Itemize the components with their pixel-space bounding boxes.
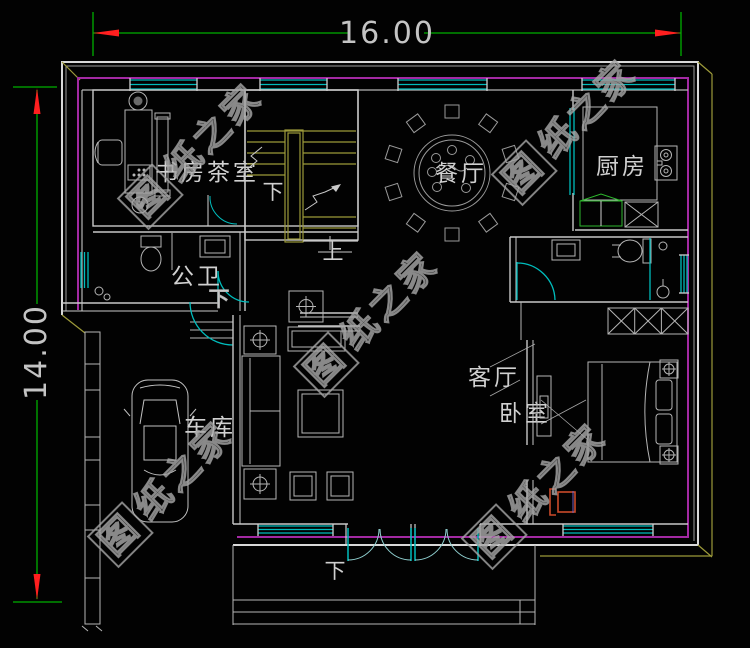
toilet bbox=[141, 236, 161, 271]
stool-left bbox=[290, 472, 316, 500]
window-living bbox=[258, 524, 333, 536]
window-bedroom bbox=[563, 524, 653, 536]
bath-door-arc bbox=[517, 263, 555, 300]
floor-drain bbox=[95, 287, 103, 295]
shower-head bbox=[657, 286, 669, 298]
window-dining bbox=[398, 78, 487, 91]
window-stairwell bbox=[260, 78, 327, 91]
bath-toilet bbox=[612, 239, 651, 263]
dim-arrow-left bbox=[93, 30, 119, 37]
stair-up-label: 上 bbox=[323, 240, 344, 264]
hall-steps: 下 bbox=[190, 287, 233, 345]
stool-right bbox=[327, 472, 353, 500]
dimension-width-label: 16.00 bbox=[339, 16, 435, 51]
bedroom-label: 卧室 bbox=[499, 401, 551, 427]
hall-down-label: 下 bbox=[209, 287, 230, 311]
floor-plan-image: 16.00 14.00 bbox=[0, 0, 750, 648]
garage-columns bbox=[82, 332, 102, 631]
side-table-bottom bbox=[244, 469, 276, 499]
fridge bbox=[625, 202, 658, 227]
dimension-left: 14.00 bbox=[13, 87, 62, 602]
bath-sink bbox=[552, 240, 580, 260]
stair-down-label: 下 bbox=[263, 180, 284, 204]
nightstand-top bbox=[660, 360, 678, 378]
coffee-table bbox=[298, 390, 343, 437]
study-door-arc bbox=[210, 196, 237, 224]
entry-down-label: 下 bbox=[325, 559, 346, 583]
dim-arrow-down bbox=[34, 574, 41, 600]
dimension-height-label: 14.00 bbox=[19, 304, 54, 400]
master-bathroom bbox=[510, 237, 688, 302]
stair-direction-arrow bbox=[305, 184, 341, 210]
sink bbox=[200, 236, 230, 257]
wardrobe bbox=[608, 308, 688, 334]
window-study bbox=[130, 78, 197, 91]
sofa bbox=[242, 356, 280, 466]
desk-chair bbox=[98, 140, 122, 165]
kitchen-label: 厨房 bbox=[596, 154, 648, 180]
stove bbox=[655, 146, 677, 180]
side-table-top bbox=[244, 326, 276, 354]
kitchen-sink bbox=[580, 194, 622, 226]
window-master-bath bbox=[679, 255, 689, 293]
dim-arrow-up bbox=[34, 88, 41, 114]
nightstand-bottom bbox=[660, 446, 678, 464]
dimension-top: 16.00 bbox=[93, 12, 681, 56]
dining-label: 餐厅 bbox=[435, 161, 487, 187]
dim-arrow-right bbox=[655, 30, 681, 37]
living-label: 客厅 bbox=[468, 365, 520, 391]
